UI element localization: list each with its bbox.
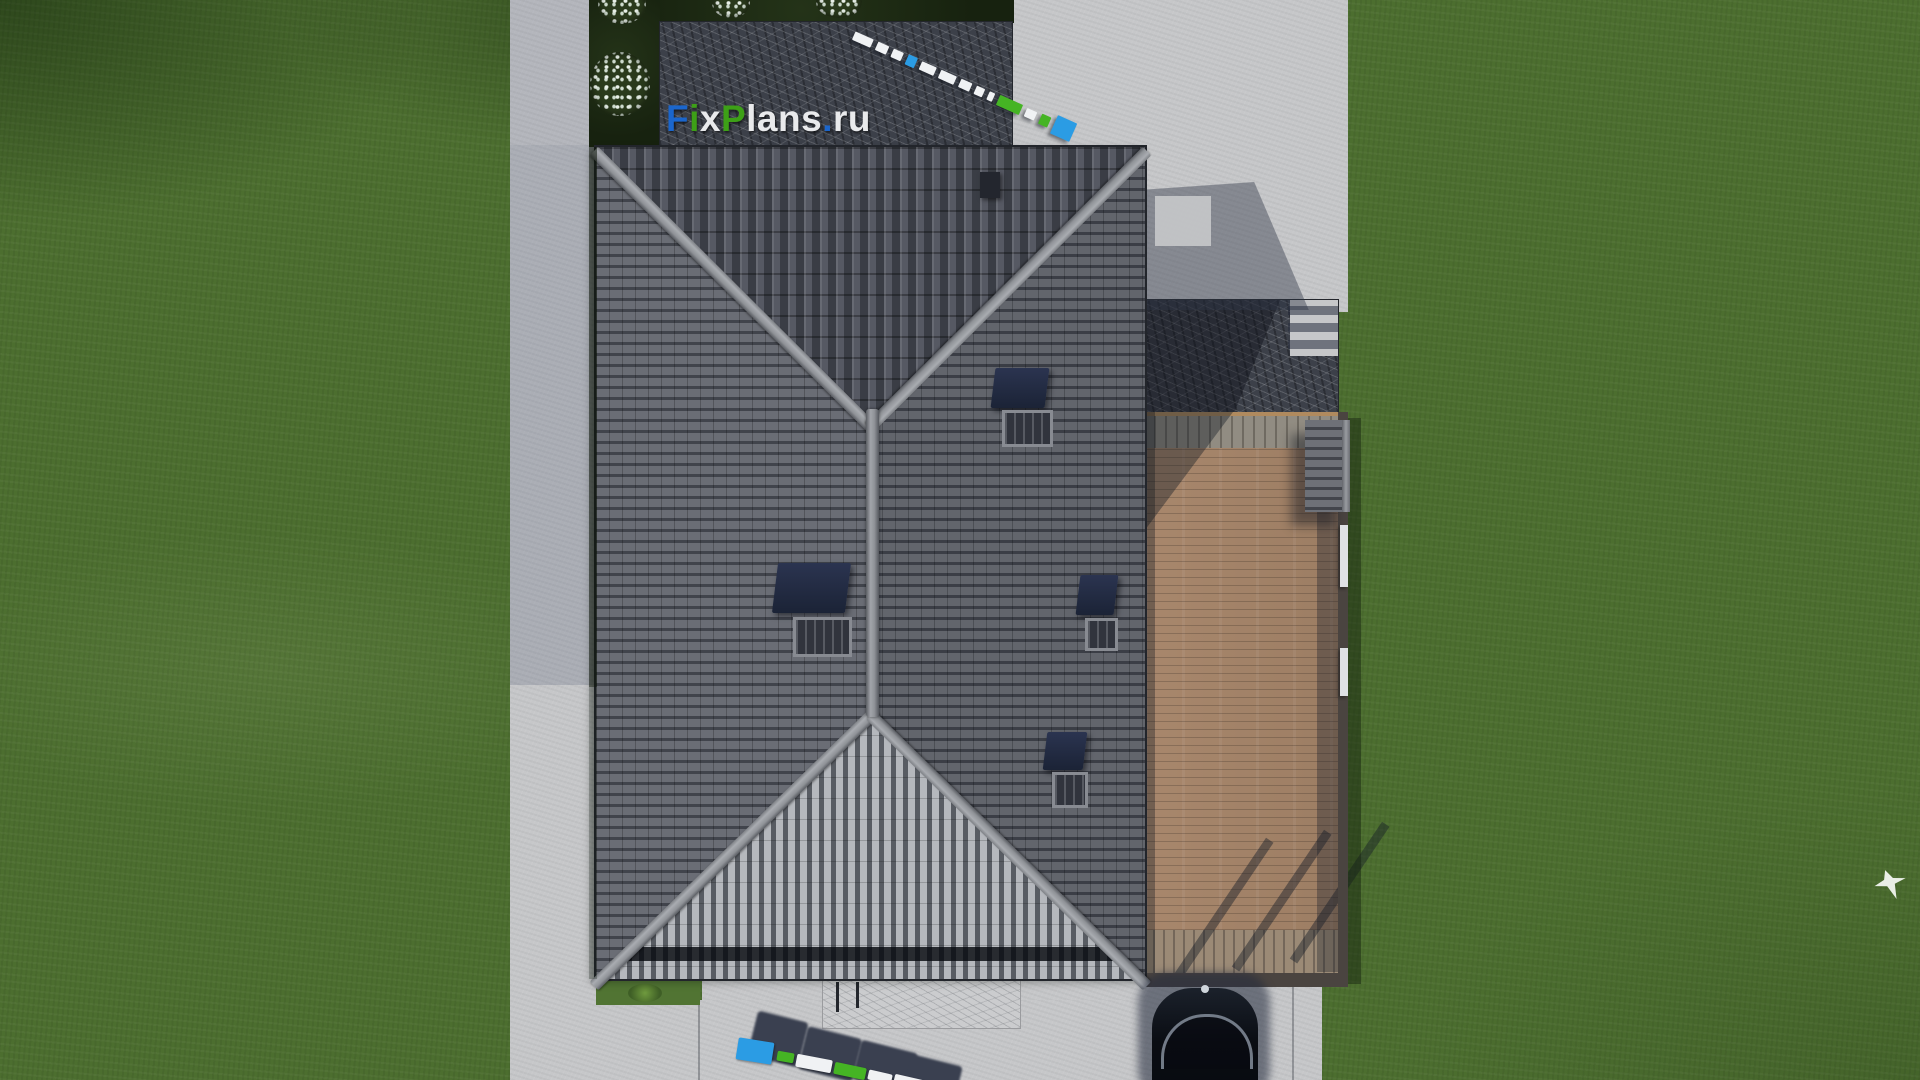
skylight-frame	[1002, 410, 1053, 447]
sign-segment	[938, 69, 958, 84]
deck-railing	[1340, 525, 1348, 587]
logo-letter: i	[689, 98, 700, 139]
skylight-open-sash	[991, 368, 1050, 408]
side-entrance-roof	[1305, 420, 1350, 512]
logo-letter: ru	[833, 98, 871, 139]
sign-segment	[987, 91, 996, 102]
step-shadow	[1288, 340, 1338, 349]
step-shadow	[1288, 323, 1338, 332]
roof-edge-shadow	[589, 687, 597, 979]
sign-segment	[891, 48, 904, 61]
pergola-light-gap	[1155, 196, 1211, 246]
main-ridge-cap	[866, 409, 879, 717]
downspout	[856, 982, 859, 1008]
skylight-frame	[1085, 618, 1118, 651]
skylight-open-sash	[1043, 732, 1088, 770]
car-windshield	[1161, 1014, 1253, 1069]
skylight-open-sash	[772, 563, 851, 613]
roof-edge-shadow	[589, 147, 597, 687]
sign-segment	[996, 94, 1023, 114]
eave-shadow-band	[596, 947, 1145, 961]
slab-joint	[1292, 985, 1294, 1080]
logo-letter: P	[721, 98, 746, 139]
marble-pad-bottom	[823, 980, 1020, 1028]
walkway-shadow-top	[510, 0, 596, 145]
fixplans-logo: FixPlans.ru	[666, 98, 871, 140]
chimney-vent	[980, 172, 1000, 198]
sign-segment	[1024, 107, 1037, 120]
logo-letter: lans	[746, 98, 822, 139]
site-plan-render: FixPlans.ru	[0, 0, 1920, 1080]
downspout	[836, 982, 839, 1012]
house-roof	[596, 147, 1145, 979]
walkway-shadow-mid	[510, 145, 596, 685]
side-roof-ridge	[1342, 420, 1350, 512]
sign-segment	[852, 31, 874, 47]
sign-segment	[1038, 113, 1052, 127]
sign-segment	[919, 61, 937, 76]
slab-joint	[698, 1004, 700, 1080]
sign-segment	[958, 78, 973, 91]
car-antenna	[1201, 985, 1209, 993]
skylight-frame	[793, 617, 852, 657]
sign-segment	[905, 54, 919, 68]
small-plant	[628, 984, 662, 1002]
parked-car	[1138, 972, 1278, 1080]
deck-inner-shadow	[1145, 412, 1155, 987]
logo-letter: x	[700, 98, 721, 139]
marble-patio-right	[1145, 300, 1338, 418]
car-body	[1152, 988, 1258, 1080]
skylight-frame	[1052, 772, 1088, 808]
deck-railing	[1340, 648, 1348, 696]
logo-letter: .	[822, 98, 833, 139]
skylight-open-sash	[1076, 575, 1119, 615]
logo-letter: F	[666, 98, 689, 139]
bird-icon	[1870, 864, 1912, 906]
flower-bush	[590, 52, 650, 116]
sign-segment	[875, 41, 890, 54]
sign-segment	[974, 85, 986, 97]
